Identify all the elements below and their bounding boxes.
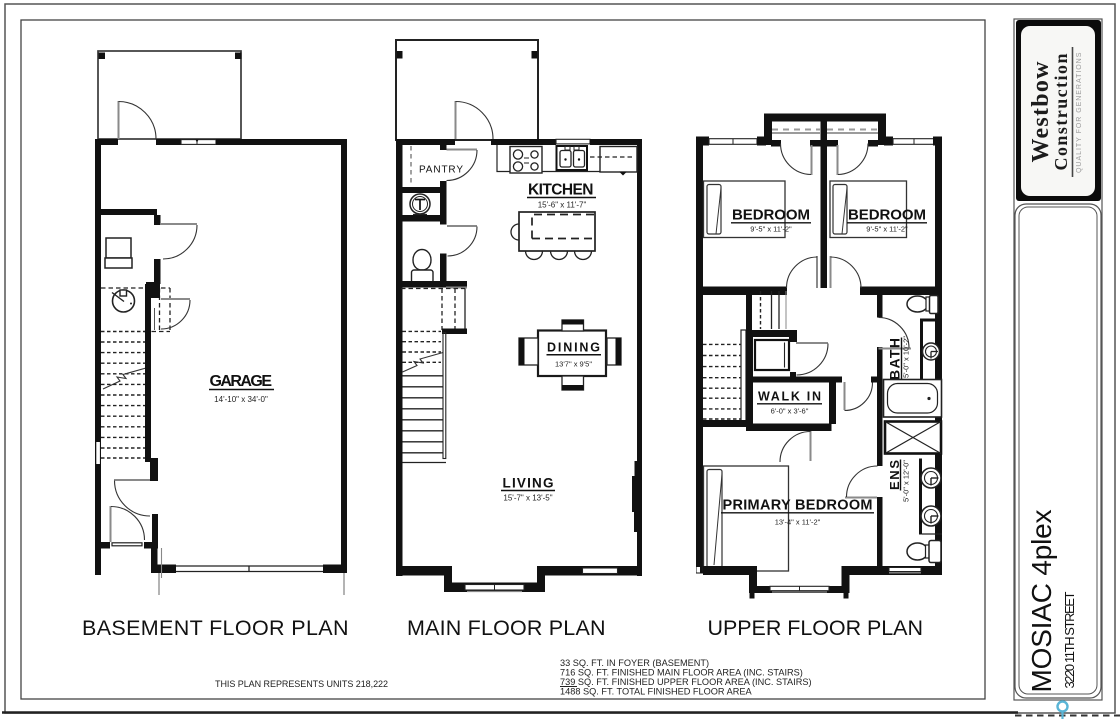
svg-text:GARAGE: GARAGE [210,373,273,390]
svg-text:BATH: BATH [887,338,903,380]
svg-text:Construction: Construction [1051,54,1071,171]
svg-text:UPPER FLOOR PLAN: UPPER FLOOR PLAN [708,616,925,640]
svg-text:MOSIAC 4plex: MOSIAC 4plex [1026,510,1057,693]
svg-text:BASEMENT FLOOR PLAN: BASEMENT FLOOR PLAN [82,616,350,640]
svg-text:13'7" x 9'5": 13'7" x 9'5" [555,360,592,369]
svg-text:739 SQ. FT. FINISHED UPPER FLO: 739 SQ. FT. FINISHED UPPER FLOOR AREA (I… [560,677,812,687]
svg-text:BEDROOM: BEDROOM [848,207,926,224]
svg-text:DINING: DINING [547,341,600,355]
svg-text:5'-0" x 10'-2": 5'-0" x 10'-2" [902,336,911,378]
svg-text:ENS: ENS [887,460,902,490]
svg-text:13'-4" x 11'-2": 13'-4" x 11'-2" [775,518,821,527]
svg-text:QUALITY FOR GENERATIONS: QUALITY FOR GENERATIONS [1076,51,1083,173]
svg-text:716 SQ. FT. FINISHED MAIN FLOO: 716 SQ. FT. FINISHED MAIN FLOOR AREA (IN… [560,668,803,678]
svg-text:THIS PLAN REPRESENTS UNITS 218: THIS PLAN REPRESENTS UNITS 218,222 [215,679,388,689]
svg-text:KITCHEN: KITCHEN [528,182,594,199]
svg-text:9'-5" x 11'-2": 9'-5" x 11'-2" [866,225,908,234]
svg-text:LIVING: LIVING [503,476,554,491]
svg-text:14'-10" x 34'-0": 14'-10" x 34'-0" [214,395,268,404]
svg-text:5'-0" x 12'-0": 5'-0" x 12'-0" [902,460,911,502]
svg-text:3220 11TH STREET: 3220 11TH STREET [1062,591,1077,688]
svg-text:33 SQ. FT. IN FOYER (BASEMENT): 33 SQ. FT. IN FOYER (BASEMENT) [560,658,709,668]
svg-text:6'-0" x 3'-6": 6'-0" x 3'-6" [771,407,809,416]
svg-text:PANTRY: PANTRY [419,165,463,176]
svg-text:15'-6" x 11'-7": 15'-6" x 11'-7" [538,201,587,210]
svg-text:1488 SQ. FT. TOTAL FINISHED FL: 1488 SQ. FT. TOTAL FINISHED FLOOR AREA [560,687,753,697]
svg-text:15'-7" x 13'-5": 15'-7" x 13'-5" [503,494,552,503]
svg-text:MAIN FLOOR PLAN: MAIN FLOOR PLAN [407,616,607,640]
svg-text:9'-5" x 11'-2": 9'-5" x 11'-2" [750,225,792,234]
svg-text:BEDROOM: BEDROOM [732,207,810,224]
svg-text:PRIMARY BEDROOM: PRIMARY BEDROOM [723,498,873,514]
